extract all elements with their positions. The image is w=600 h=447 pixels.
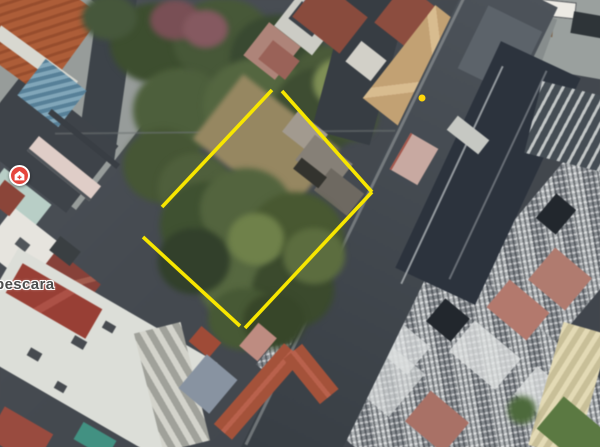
satellite-imagery xyxy=(0,0,600,447)
tree xyxy=(508,396,536,424)
tree-canopy xyxy=(158,228,230,294)
tree-canopy xyxy=(228,213,284,265)
home-marker[interactable] xyxy=(9,165,30,186)
house-with-cross-icon xyxy=(13,169,26,182)
place-label[interactable]: pescara xyxy=(0,276,55,293)
tree-canopy xyxy=(283,228,345,284)
tree-canopy-purple xyxy=(183,10,228,48)
satellite-map-canvas[interactable]: pescara xyxy=(0,0,600,447)
